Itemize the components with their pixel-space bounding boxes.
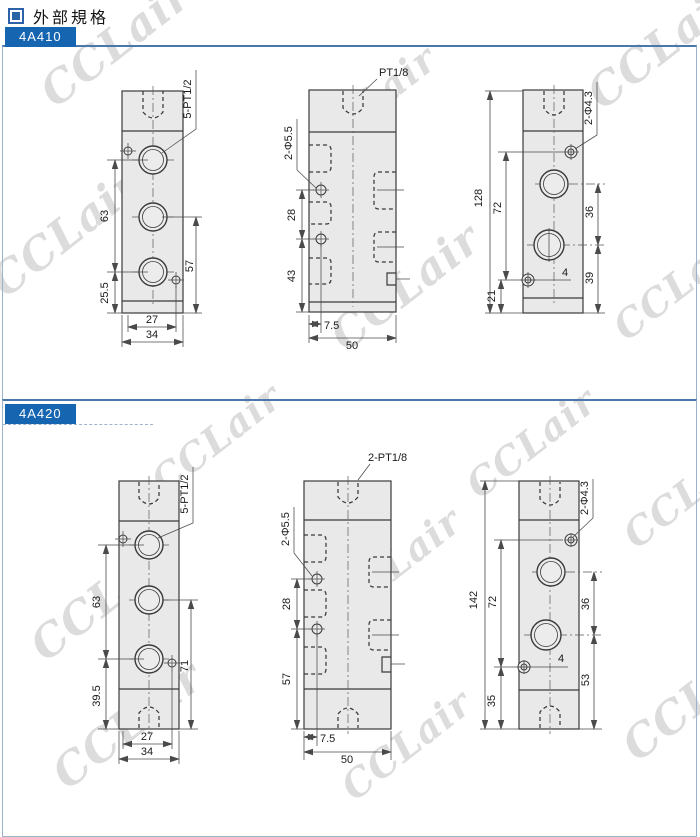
page: { "header": { "title": "外部規格" }, "waterm…: [0, 0, 700, 836]
dim-label: 7.5: [324, 320, 339, 332]
dim-label: 21: [486, 290, 498, 302]
model-label-4a420: 4A420: [5, 404, 76, 424]
dim-label: 28: [286, 209, 298, 221]
section-4a420: 4A420 63 39.5 71 27: [2, 399, 697, 837]
dim-label: 142: [468, 591, 480, 609]
dim-label: 50: [341, 754, 353, 766]
view-4a420-side: 28 57 7.5 50 2-Φ5.5 2-PT1/8: [280, 452, 407, 766]
dim-label: 34: [146, 329, 158, 341]
pilot-hole-label: 2-Φ5.5: [280, 512, 292, 546]
dim-label: 36: [584, 206, 596, 218]
dim-label: 128: [473, 189, 485, 207]
section-bullet-icon: [8, 8, 24, 24]
drawing-4a410: 63 25.5 57 27 34 5-PT1/2 28: [3, 47, 696, 399]
dim-label: 36: [580, 598, 592, 610]
dim-label: 4: [558, 653, 564, 665]
model-label-4a410: 4A410: [5, 27, 76, 47]
dim-label: 57: [281, 673, 293, 685]
view-4a410-front: 63 25.5 57 27 34 5-PT1/2: [99, 70, 202, 347]
pilot-thread-label: 2-PT1/8: [368, 452, 407, 464]
dim-label: 63: [91, 596, 103, 608]
dim-label: 43: [286, 270, 298, 282]
dim-label: 27: [141, 731, 153, 743]
dim-label: 28: [281, 598, 293, 610]
dim-label: 72: [487, 596, 499, 608]
screw-hole-label: 2-Φ4.3: [583, 91, 595, 125]
view-4a420-front: 63 39.5 71 27 34 5-PT1/2: [91, 467, 198, 764]
dim-label: 35: [486, 695, 498, 707]
view-4a420-end: 142 72 36 53 35 4 2-Φ4.3: [468, 476, 602, 734]
dim-label: 34: [141, 746, 153, 758]
section-4a410: 4A410 63 25.5: [2, 45, 697, 400]
dim-label: 63: [99, 210, 111, 222]
view-4a410-side: 28 43 7.5 50 2-Φ5.5 PT1/8: [283, 67, 410, 352]
dim-label: 27: [146, 314, 158, 326]
dim-label: 72: [492, 202, 504, 214]
pilot-thread-label: PT1/8: [379, 67, 408, 79]
port-thread-label: 5-PT1/2: [182, 79, 194, 118]
dim-label: 71: [179, 660, 191, 672]
port-thread-label: 5-PT1/2: [179, 474, 191, 513]
drawing-4a420: 63 39.5 71 27 34 5-PT1/2 28: [3, 401, 696, 836]
dim-label: 25.5: [99, 282, 111, 303]
dim-label: 39: [584, 272, 596, 284]
page-header: 外部規格: [8, 4, 109, 28]
dim-label: 50: [346, 340, 358, 352]
dim-label: 4: [562, 267, 568, 279]
dim-label: 39.5: [91, 685, 103, 706]
screw-hole-label: 2-Φ4.3: [579, 481, 591, 515]
dim-label: 57: [184, 260, 196, 272]
page-title: 外部規格: [33, 4, 109, 28]
pilot-hole-label: 2-Φ5.5: [283, 126, 295, 160]
dim-label: 7.5: [320, 733, 335, 745]
view-4a410-end: 128 72 36 39 21 4 2-Φ4.3: [473, 82, 605, 313]
dim-label: 53: [580, 674, 592, 686]
